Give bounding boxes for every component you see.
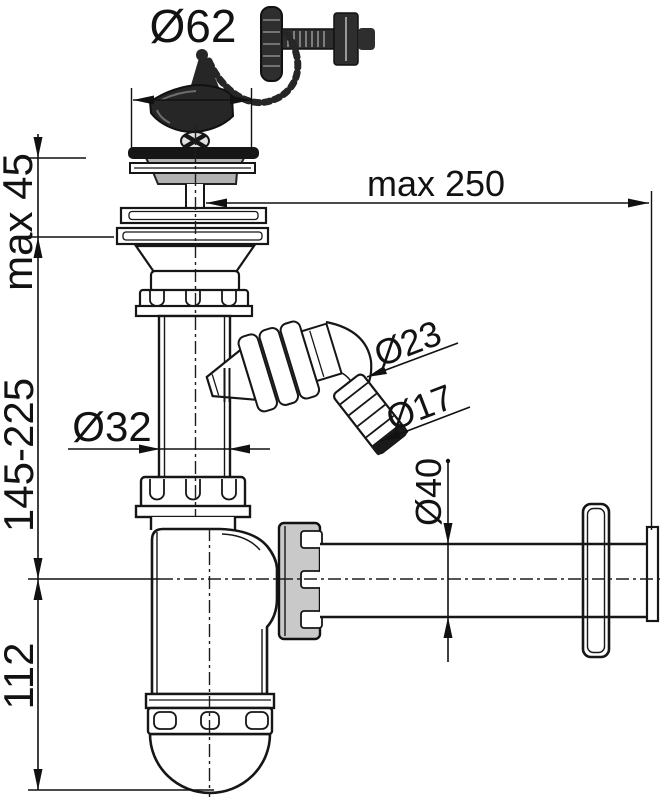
arrow-down-790 bbox=[34, 769, 43, 790]
chain-holder-screw bbox=[261, 7, 375, 81]
coupling-nut-flange bbox=[136, 506, 250, 517]
label-tailpipe-diameter: Ø32 bbox=[72, 403, 151, 450]
label-strainer-diameter: Ø62 bbox=[150, 0, 237, 52]
max250-arrow-right bbox=[628, 199, 649, 208]
label-sink-thickness: max 45 bbox=[0, 153, 41, 291]
outlet-nut-slot bbox=[301, 531, 322, 548]
label-overflow-small: Ø17 bbox=[380, 376, 458, 439]
label-bottom-height: 112 bbox=[0, 643, 42, 710]
arrow-down-579 bbox=[34, 558, 43, 579]
nut-top-flange bbox=[136, 306, 252, 316]
dim62-arrow-left bbox=[133, 96, 154, 105]
strainer-lip bbox=[128, 147, 259, 159]
screw-tip bbox=[358, 28, 375, 50]
pipe-end-collar bbox=[647, 527, 658, 621]
coupling-nut-upper bbox=[141, 477, 245, 508]
rubber-plug bbox=[150, 49, 233, 132]
outlet-nut-slot bbox=[301, 611, 322, 628]
label-height-range: 145-225 bbox=[0, 378, 42, 532]
arrow-up-579 bbox=[34, 579, 43, 600]
label-wall-distance: max 250 bbox=[367, 163, 505, 204]
siphon-technical-drawing: Ø62 max 250 max 45 145-225 112 Ø32 Ø40 Ø… bbox=[0, 0, 661, 800]
outlet-assembly bbox=[279, 504, 658, 657]
trap-body bbox=[152, 529, 277, 694]
technical-drawing-page: Ø62 max 250 max 45 145-225 112 Ø32 Ø40 Ø… bbox=[0, 0, 661, 800]
label-overflow-large: Ø23 bbox=[368, 312, 446, 375]
label-outlet-diameter: Ø40 bbox=[408, 458, 449, 526]
dim40-arrow-bottom bbox=[444, 617, 453, 638]
flange-plate-lower bbox=[117, 228, 268, 244]
bottle-trap bbox=[136, 477, 277, 793]
dim32-arrow-right bbox=[229, 445, 250, 454]
max250-arrow-left bbox=[206, 199, 227, 208]
flange-plate-upper bbox=[121, 208, 266, 223]
